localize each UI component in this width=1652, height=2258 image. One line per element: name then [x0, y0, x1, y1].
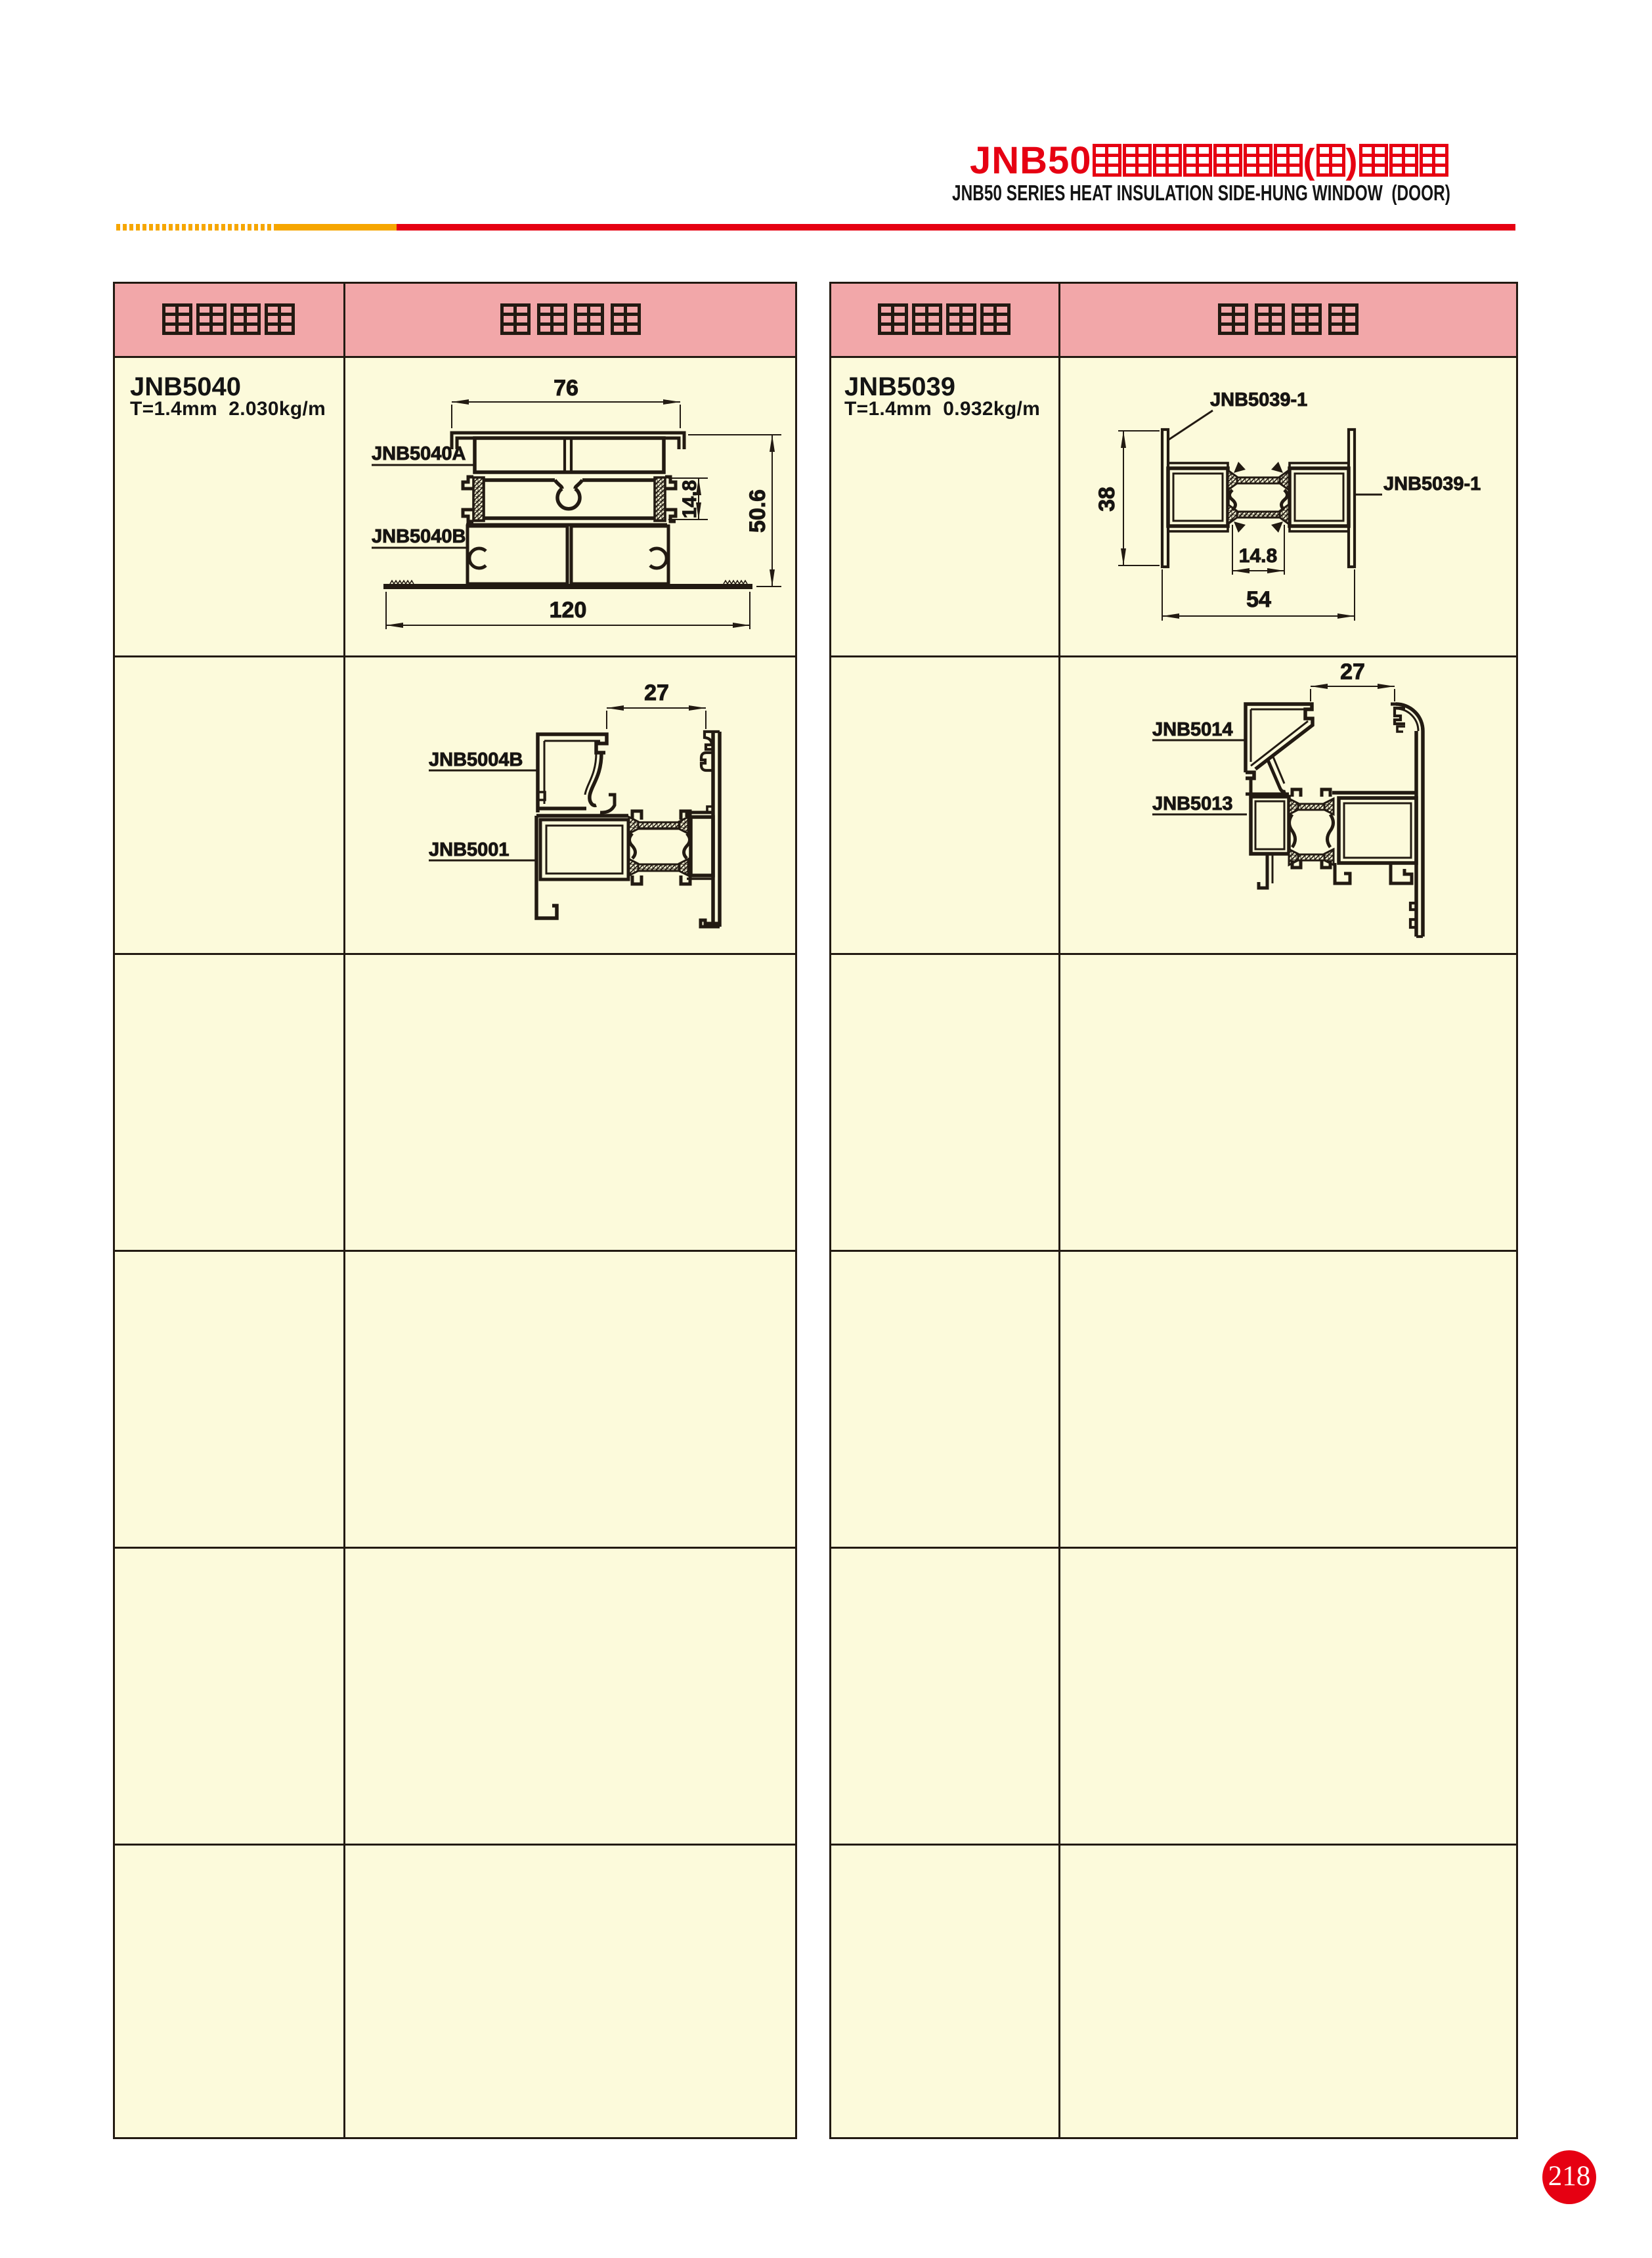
svg-text:38: 38	[1095, 487, 1119, 512]
svg-text:JNB5004B: JNB5004B	[429, 749, 523, 770]
svg-text:14.8: 14.8	[679, 480, 701, 518]
svg-text:JNB5014: JNB5014	[1152, 719, 1233, 740]
svg-text:27: 27	[1340, 663, 1365, 684]
svg-text:76: 76	[554, 376, 578, 401]
svg-text:14.8: 14.8	[1239, 545, 1277, 567]
svg-text:120: 120	[550, 598, 587, 623]
svg-text:JNB5013: JNB5013	[1152, 793, 1233, 814]
svg-text:50.6: 50.6	[745, 489, 770, 533]
svg-text:JNB5039-1: JNB5039-1	[1210, 389, 1307, 410]
svg-text:JNB5040B: JNB5040B	[372, 526, 466, 547]
svg-text:27: 27	[644, 680, 669, 705]
svg-text:54: 54	[1246, 587, 1271, 612]
svg-text:JNB5001: JNB5001	[429, 839, 510, 860]
svg-text:JNB5039-1: JNB5039-1	[1383, 474, 1481, 495]
